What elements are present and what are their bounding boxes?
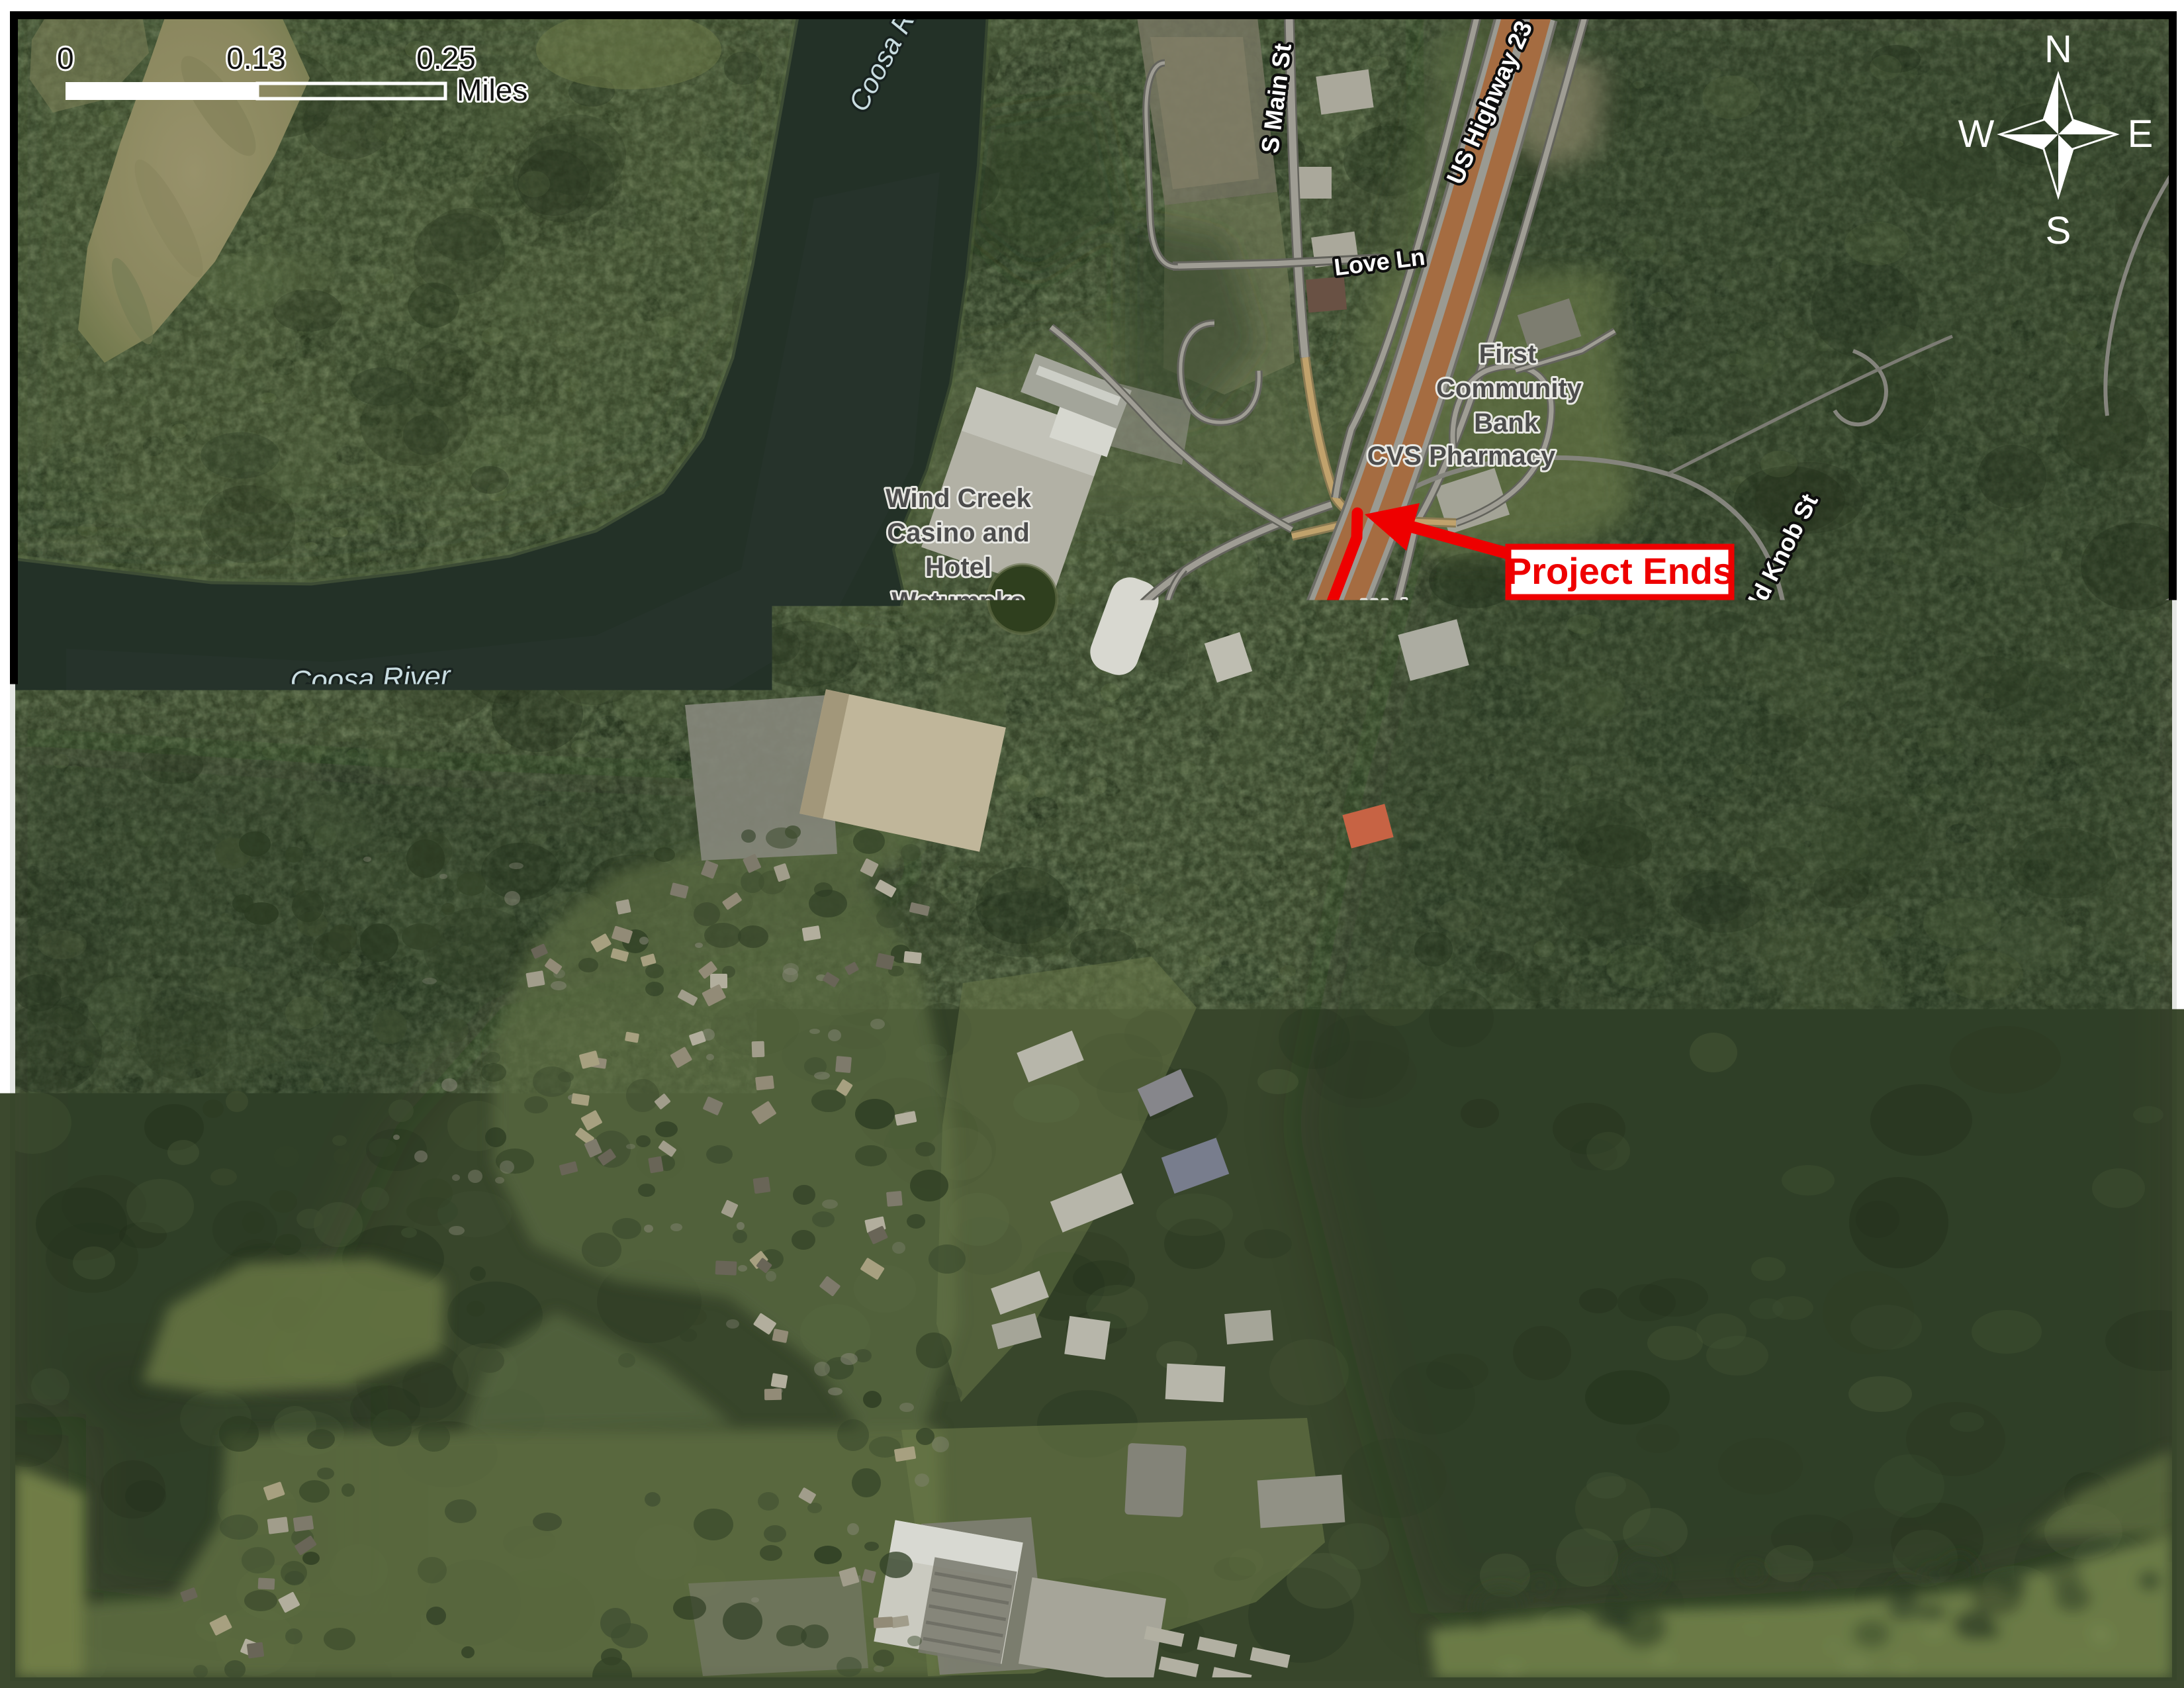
svg-text:0: 0 <box>57 41 74 75</box>
svg-text:E: E <box>2128 113 2154 156</box>
svg-text:S: S <box>2046 209 2071 252</box>
svg-text:Mexican: Mexican <box>1126 880 1230 909</box>
svg-text:Miles: Miles <box>457 73 527 107</box>
svg-text:E Charles Ave: E Charles Ave <box>1091 1419 1254 1446</box>
svg-text:Coosa River: Coosa River <box>290 660 453 698</box>
svg-text:Walgreens: Walgreens <box>1362 595 1495 624</box>
svg-text:Community: Community <box>1436 374 1582 403</box>
svg-text:N: N <box>2044 28 2072 71</box>
svg-text:Nuevo: Nuevo <box>713 1618 794 1648</box>
svg-text:Wind Creek: Wind Creek <box>886 484 1031 513</box>
svg-text:Project Begins: Project Begins <box>551 1307 811 1349</box>
svg-text:Pizza Hut: Pizza Hut <box>1163 688 1281 717</box>
svg-text:Gunter Ave: Gunter Ave <box>380 1540 506 1568</box>
svg-text:McDonald's: McDonald's <box>887 1448 1035 1477</box>
svg-text:First: First <box>1479 340 1537 369</box>
svg-text:0.25: 0.25 <box>416 41 476 75</box>
svg-text:Captain D's: Captain D's <box>857 1503 1001 1532</box>
svg-text:San Marcos: San Marcos <box>1104 845 1253 874</box>
svg-text:Domino's: Domino's <box>1111 1081 1231 1110</box>
svg-text:Blueberry Hill: Blueberry Hill <box>1472 834 1704 874</box>
svg-text:Wetumpka: Wetumpka <box>891 587 1025 616</box>
svg-text:0.13: 0.13 <box>226 41 286 75</box>
svg-text:W Charles Ave: W Charles Ave <box>363 1419 528 1446</box>
svg-text:W: W <box>1958 113 1995 156</box>
svg-text:Bank: Bank <box>1474 408 1539 438</box>
svg-text:CVS Pharmacy: CVS Pharmacy <box>1367 442 1556 471</box>
svg-text:Hotel: Hotel <box>925 553 991 582</box>
svg-text:Project Ends: Project Ends <box>1507 550 1733 592</box>
svg-text:Casino and: Casino and <box>887 518 1030 547</box>
svg-text:AutoZone: AutoZone <box>1081 1212 1205 1241</box>
